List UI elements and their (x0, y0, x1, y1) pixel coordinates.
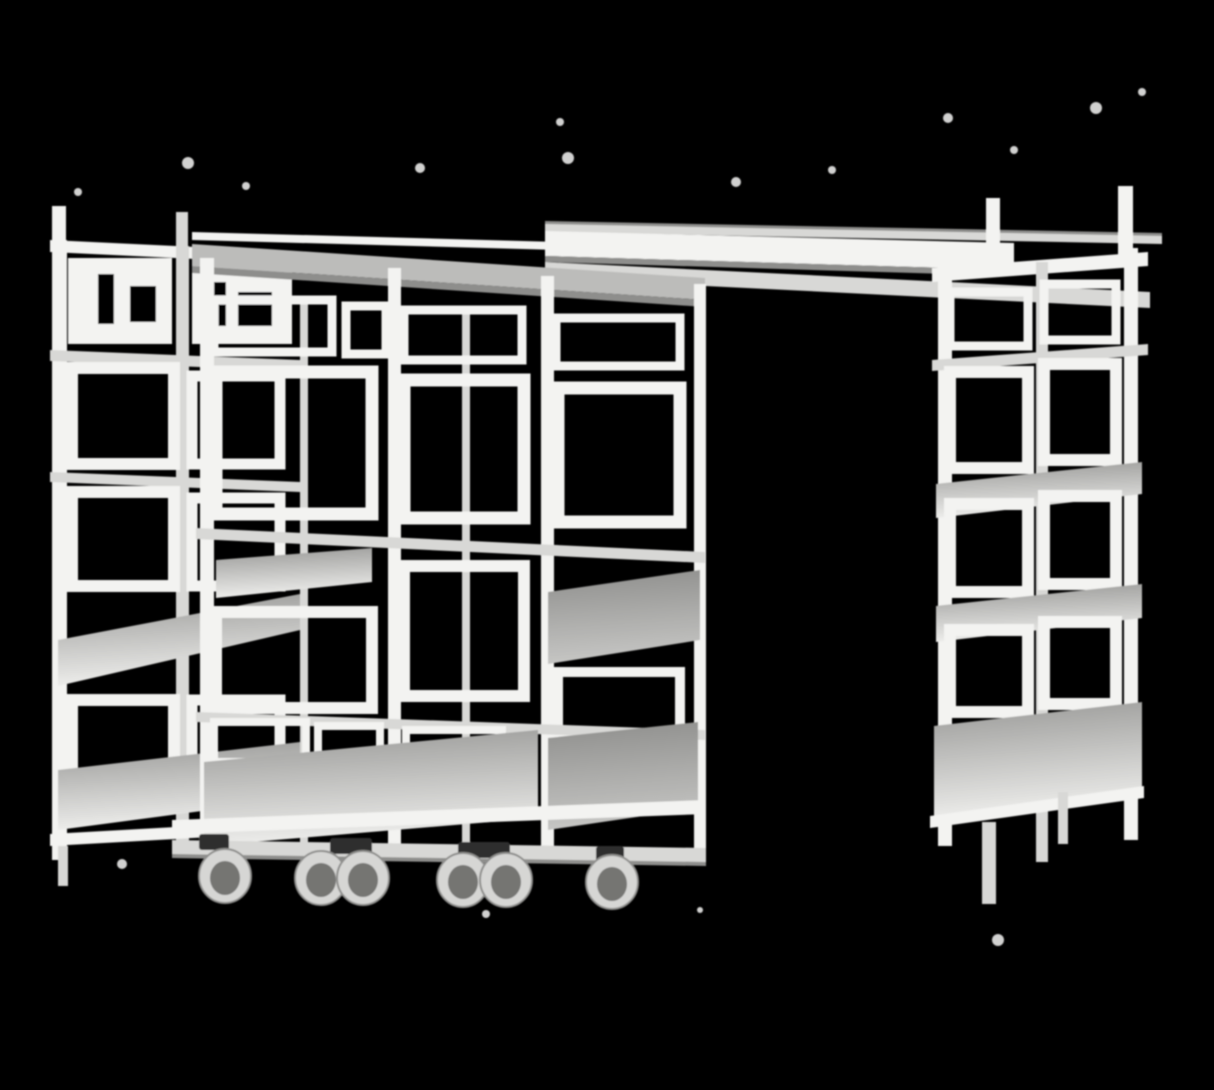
panel-hole (98, 274, 114, 324)
caster-stem (199, 834, 229, 850)
shelf-surface (548, 570, 700, 664)
speck (482, 910, 490, 918)
scene (50, 88, 1162, 946)
rack-foot (1058, 792, 1068, 844)
shelf-cell (556, 318, 680, 366)
shelf-cell (72, 492, 174, 586)
rack-foot (58, 846, 68, 886)
speck (562, 152, 574, 164)
caster-wheel-hub (348, 863, 378, 897)
speck (828, 166, 836, 174)
caster-wheel-hub (597, 867, 627, 901)
shelf-cell (346, 306, 386, 354)
shelf-cell (558, 388, 680, 522)
rack-post-stub (986, 198, 1000, 260)
speck (992, 934, 1004, 946)
speck (731, 177, 741, 187)
speck (943, 113, 953, 123)
speck (697, 907, 703, 913)
rack-post (52, 240, 67, 860)
speck (182, 157, 194, 169)
shelf-cell (72, 368, 174, 464)
shelf-cell (950, 630, 1028, 712)
shelf-cell (950, 372, 1028, 468)
caster-wheel-hub (491, 865, 521, 899)
speck (1138, 88, 1146, 96)
caster-wheel-hub (210, 861, 240, 895)
shelf-cell (1044, 364, 1116, 460)
shelf-cell (950, 504, 1028, 592)
speck (1010, 146, 1018, 154)
caster-wheel-hub (306, 863, 336, 897)
panel-hole (130, 286, 156, 322)
shelf-cell (1044, 622, 1116, 704)
speck (74, 188, 82, 196)
shelf-cell (1044, 496, 1116, 584)
shelving-photo (0, 0, 1214, 1090)
speck (556, 118, 564, 126)
shelving-illustration (0, 0, 1214, 1090)
speck (415, 163, 425, 173)
rack-post-stub (1118, 186, 1133, 256)
rack-post-stub (176, 212, 188, 248)
rack-foot (982, 822, 996, 904)
right-rack (930, 186, 1148, 904)
speck (117, 859, 127, 869)
speck (1090, 102, 1102, 114)
shelf-panel (68, 258, 172, 344)
caster-wheel-hub (448, 865, 478, 899)
speck (242, 182, 250, 190)
image-canvas (0, 0, 1214, 1090)
shelf-surface (216, 548, 372, 598)
